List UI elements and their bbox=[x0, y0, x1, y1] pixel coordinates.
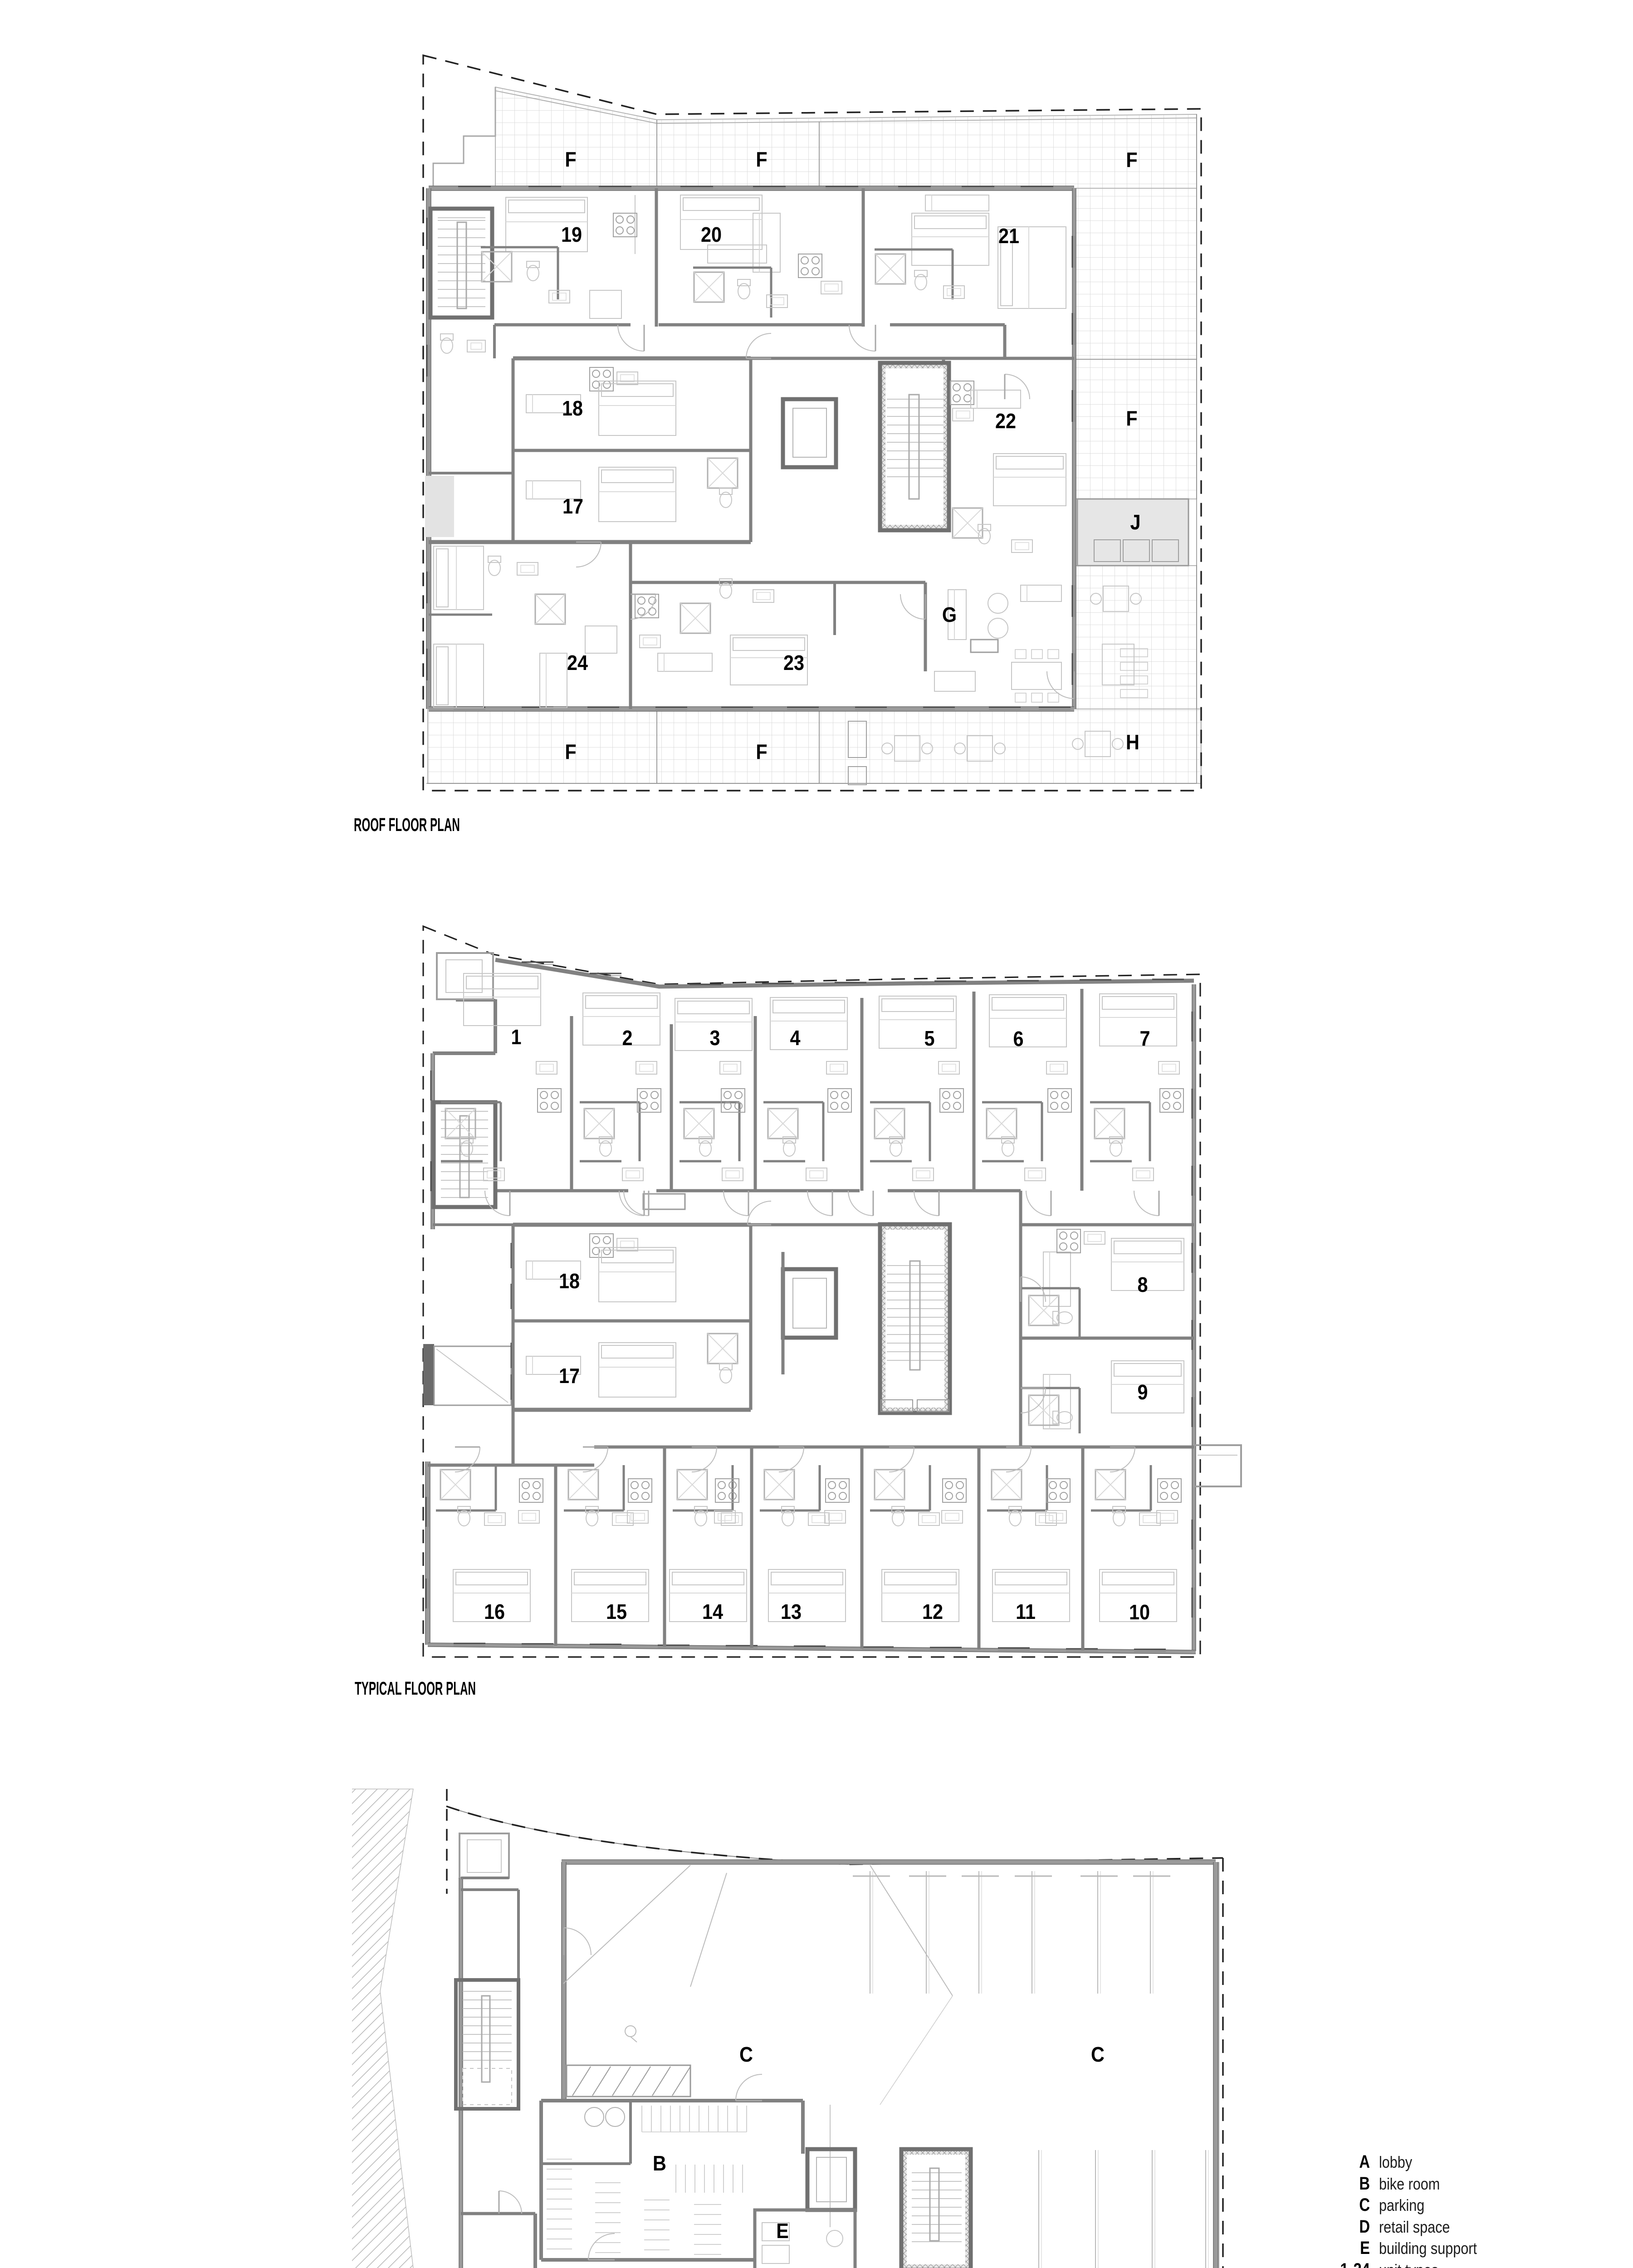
svg-text:6: 6 bbox=[1013, 1027, 1023, 1051]
svg-text:10: 10 bbox=[1129, 1601, 1150, 1624]
svg-text:23: 23 bbox=[783, 651, 804, 675]
svg-text:J: J bbox=[1130, 511, 1140, 534]
svg-text:F: F bbox=[565, 148, 576, 171]
svg-text:7: 7 bbox=[1139, 1027, 1150, 1051]
svg-text:TYPICAL FLOOR PLAN: TYPICAL FLOOR PLAN bbox=[355, 1679, 476, 1699]
svg-text:G: G bbox=[942, 603, 957, 627]
svg-text:F: F bbox=[1126, 148, 1137, 172]
svg-text:B: B bbox=[1359, 2173, 1370, 2194]
svg-text:parking: parking bbox=[1379, 2197, 1424, 2215]
svg-text:ROOF FLOOR PLAN: ROOF FLOOR PLAN bbox=[354, 815, 460, 836]
svg-text:17: 17 bbox=[559, 1364, 580, 1388]
svg-text:C: C bbox=[739, 2043, 753, 2067]
svg-text:retail space: retail space bbox=[1379, 2219, 1450, 2237]
svg-text:3: 3 bbox=[709, 1026, 720, 1050]
svg-text:13: 13 bbox=[781, 1600, 802, 1624]
svg-text:8: 8 bbox=[1137, 1273, 1148, 1297]
svg-text:F: F bbox=[565, 740, 576, 764]
svg-text:1: 1 bbox=[511, 1026, 521, 1049]
svg-text:unit types: unit types bbox=[1379, 2262, 1438, 2268]
svg-text:E: E bbox=[1360, 2238, 1370, 2258]
svg-text:bike room: bike room bbox=[1379, 2175, 1440, 2194]
svg-text:F: F bbox=[1126, 407, 1137, 430]
svg-text:16: 16 bbox=[484, 1600, 505, 1624]
svg-text:15: 15 bbox=[606, 1600, 627, 1624]
svg-text:19: 19 bbox=[561, 223, 582, 247]
svg-text:2: 2 bbox=[622, 1026, 632, 1050]
svg-text:12: 12 bbox=[922, 1600, 943, 1624]
svg-text:A: A bbox=[1359, 2151, 1370, 2172]
svg-text:17: 17 bbox=[562, 495, 583, 518]
svg-text:E: E bbox=[776, 2219, 789, 2243]
svg-text:24: 24 bbox=[567, 651, 588, 675]
svg-text:lobby: lobby bbox=[1379, 2154, 1412, 2172]
svg-text:11: 11 bbox=[1016, 1600, 1036, 1624]
svg-text:C: C bbox=[1091, 2043, 1105, 2067]
svg-text:21: 21 bbox=[998, 225, 1019, 248]
svg-text:F: F bbox=[756, 148, 767, 171]
svg-text:D: D bbox=[1359, 2216, 1370, 2237]
svg-text:1-24: 1-24 bbox=[1340, 2259, 1370, 2268]
svg-text:9: 9 bbox=[1137, 1381, 1148, 1404]
svg-text:4: 4 bbox=[790, 1026, 801, 1050]
svg-text:H: H bbox=[1126, 731, 1139, 754]
svg-text:building support: building support bbox=[1379, 2240, 1477, 2258]
svg-text:C: C bbox=[1359, 2195, 1370, 2215]
svg-text:5: 5 bbox=[924, 1027, 934, 1051]
svg-text:14: 14 bbox=[702, 1600, 724, 1624]
svg-text:20: 20 bbox=[701, 223, 722, 247]
svg-text:18: 18 bbox=[559, 1270, 580, 1293]
svg-text:F: F bbox=[756, 740, 767, 764]
svg-text:18: 18 bbox=[562, 397, 583, 420]
svg-text:B: B bbox=[653, 2152, 666, 2175]
svg-text:22: 22 bbox=[995, 410, 1016, 433]
